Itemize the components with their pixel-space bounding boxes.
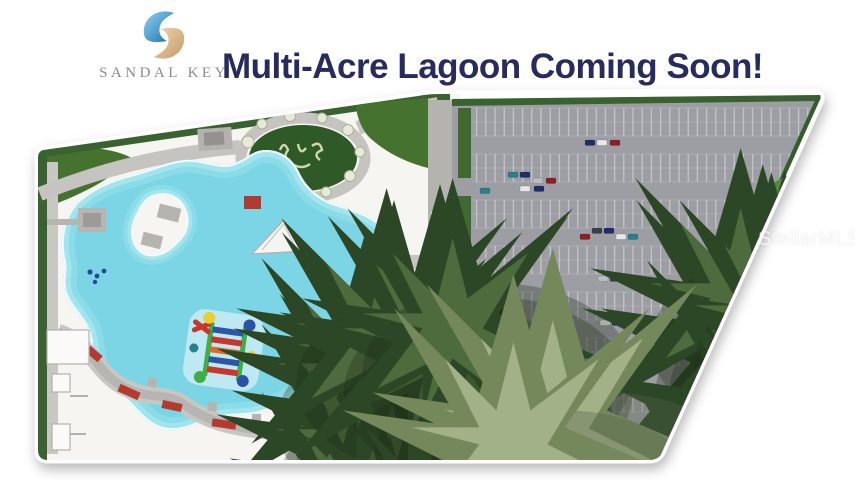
parked-car — [610, 140, 620, 146]
listing-image: SANDAL KEY Multi-Acre Lagoon Coming Soon… — [0, 0, 855, 481]
parked-car — [520, 172, 530, 178]
parking-tree-icon — [751, 303, 855, 481]
parked-car — [508, 172, 518, 178]
north-structure-roof — [204, 131, 225, 145]
parking-tree-icon — [778, 445, 855, 481]
parked-car — [604, 228, 614, 234]
site-plan-rendering — [0, 0, 855, 481]
parking-tree-icon — [778, 163, 855, 481]
palm-tree-icon — [466, 468, 855, 481]
parked-car — [580, 234, 590, 240]
left-walkway — [47, 162, 58, 454]
beach-pier-deck — [83, 213, 101, 227]
parked-car — [480, 188, 490, 194]
parking-tree-icon — [807, 357, 855, 481]
parked-car — [616, 234, 626, 240]
palm-tree-icon — [485, 472, 855, 481]
parking-tree-icon — [835, 309, 855, 481]
parked-car — [592, 228, 602, 234]
parked-car — [533, 178, 543, 184]
parking-tree-icon — [806, 398, 855, 481]
parked-car — [534, 186, 544, 192]
parking-tree-icon — [723, 351, 855, 481]
parking-tree-icon — [750, 248, 855, 481]
parked-car — [520, 186, 530, 192]
parking-tree-icon — [778, 202, 855, 481]
palm-tree-icon — [226, 472, 557, 481]
parking-tree-icon — [833, 296, 855, 481]
parking-tree-icon — [695, 438, 855, 481]
parked-car — [546, 178, 556, 184]
parked-car — [597, 140, 607, 146]
parked-car — [628, 234, 638, 240]
parked-car — [598, 276, 608, 282]
palm-tree-icon — [459, 468, 855, 481]
parking-tree-icon — [780, 215, 855, 481]
parking-tree-icon — [805, 344, 855, 481]
parking-tree-icon — [752, 261, 855, 481]
parking-tree-icon — [833, 255, 855, 481]
parking-tree-icon — [723, 391, 855, 481]
parked-car — [585, 140, 595, 146]
